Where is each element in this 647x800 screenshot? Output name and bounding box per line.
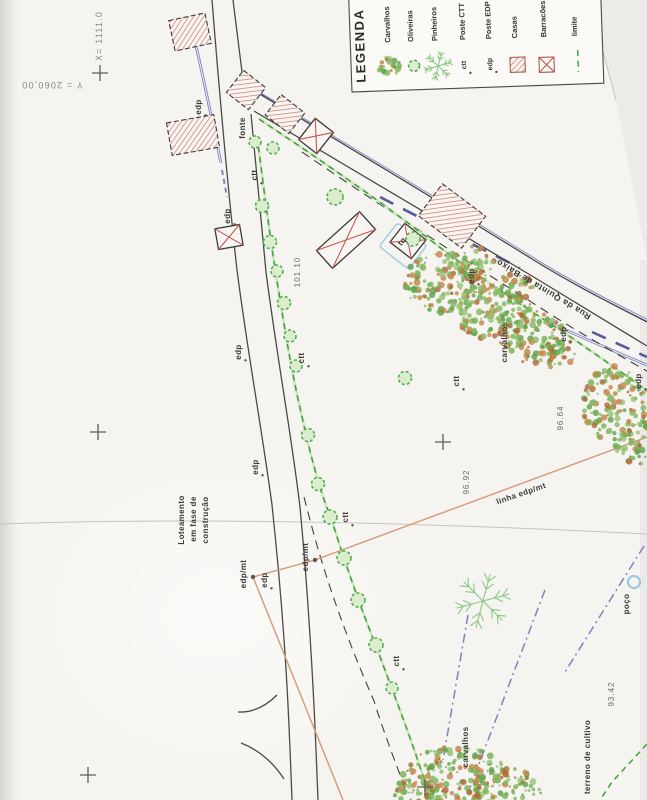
oak-foliage-dot: [551, 331, 554, 334]
oak-foliage-dot: [416, 791, 421, 796]
oak-foliage-dot: [531, 317, 536, 322]
oak-foliage-dot: [481, 333, 487, 339]
pole-dot: [233, 223, 235, 225]
pine-twig: [492, 610, 501, 611]
oak-foliage-dot: [495, 316, 499, 320]
map-label: edp/mt: [301, 543, 310, 572]
oak-foliage-dot: [478, 768, 483, 773]
oak-foliage-dot: [472, 752, 478, 758]
oak-foliage-dot: [501, 317, 506, 322]
oak-foliage-dot: [525, 358, 528, 361]
oak-foliage-dot: [435, 756, 438, 759]
pole-dot: [644, 388, 646, 390]
oak-foliage-dot: [397, 781, 403, 787]
oak-foliage-dot: [523, 305, 526, 308]
oak-foliage-dot: [523, 316, 527, 320]
oak-foliage-dot: [470, 287, 475, 292]
oak-foliage-dot: [608, 417, 614, 423]
legend-item-label: Poste EDP: [483, 1, 493, 39]
map-label: 93.42: [607, 681, 616, 706]
oak-foliage-dot: [639, 463, 641, 465]
oak-foliage-dot: [493, 774, 499, 780]
olive-tree: [399, 372, 412, 385]
oak-foliage-dot: [426, 782, 428, 784]
pole-dot: [244, 359, 246, 361]
pine-twig: [443, 70, 447, 71]
oak-foliage-dot: [634, 424, 636, 426]
olive-tree: [406, 232, 420, 246]
oak-foliage-dot: [447, 750, 453, 756]
oak-foliage-dot: [450, 292, 454, 296]
oak-foliage-dot: [409, 282, 412, 285]
oak-foliage-dot: [592, 423, 598, 429]
oak-foliage-dot: [533, 359, 540, 366]
map-label: ctt: [392, 656, 401, 667]
olive-tree: [327, 189, 343, 205]
oak-foliage-dot: [515, 346, 518, 349]
oak-foliage-dot: [604, 402, 610, 408]
pole-dot: [307, 365, 309, 367]
oak-foliage-dot: [437, 764, 442, 769]
legend-title: LEGENDA: [351, 8, 369, 83]
pine-twig: [468, 578, 469, 587]
oak-foliage-dot: [413, 295, 417, 299]
oak-foliage-dot: [502, 276, 509, 283]
olive-tree: [271, 265, 283, 277]
oak-foliage-dot: [629, 394, 631, 396]
power-pole-dot: [251, 575, 255, 579]
oak-foliage-dot: [619, 409, 622, 412]
oak-foliage-dot: [596, 383, 599, 386]
oak-foliage-dot: [443, 748, 448, 753]
oak-foliage-dot: [435, 795, 440, 800]
oak-foliage-dot: [431, 791, 435, 795]
oak-foliage-dot: [485, 781, 489, 785]
oak-foliage-dot: [608, 368, 610, 370]
map-label: Loteamento: [177, 495, 186, 544]
oak-foliage-dot: [498, 784, 500, 786]
oak-foliage-dot: [563, 355, 567, 359]
oak-foliage-dot: [420, 753, 422, 755]
oak-foliage-dot: [448, 261, 455, 268]
map-label: edp: [260, 572, 269, 587]
oak-foliage-dot: [532, 788, 536, 792]
oak-foliage-dot: [599, 413, 602, 416]
oak-foliage-dot: [511, 308, 515, 312]
oak-foliage-dot: [627, 428, 632, 433]
oak-foliage-dot: [425, 257, 427, 259]
scan-left-shadow: [0, 0, 18, 800]
oak-foliage-dot: [621, 451, 625, 455]
oak-foliage-dot: [490, 260, 494, 264]
oak-foliage-dot: [512, 791, 516, 795]
oak-foliage-dot: [430, 303, 434, 307]
oak-foliage-dot: [582, 408, 587, 413]
oak-foliage-dot: [489, 307, 494, 312]
oak-foliage-dot: [589, 386, 596, 393]
map-label: edp: [634, 373, 643, 388]
oak-foliage-dot: [636, 430, 640, 434]
legend-item-label: limite: [570, 16, 580, 36]
oak-foliage-dot: [587, 422, 590, 425]
map-label: 96.64: [556, 405, 565, 430]
oak-foliage-dot: [468, 264, 471, 267]
scan-light-patch: [0, 430, 430, 800]
oak-foliage-dot: [479, 320, 484, 325]
oak-foliage-dot: [440, 271, 446, 277]
oak-foliage-dot: [437, 273, 440, 276]
oak-foliage-dot: [628, 440, 634, 446]
oak-foliage-dot: [411, 782, 417, 788]
oak-foliage-dot: [536, 310, 538, 312]
map-label: em fase de: [189, 496, 198, 542]
oak-foliage-dot: [466, 789, 472, 795]
oak-foliage-dot: [443, 781, 449, 787]
olive-tree: [386, 682, 398, 694]
oak-foliage-dot: [446, 291, 450, 295]
house-symbol: [510, 57, 526, 73]
oak-foliage-dot: [479, 758, 481, 760]
oak-foliage-dot: [448, 273, 454, 279]
oak-foliage-dot: [515, 299, 521, 305]
oak-foliage-dot: [427, 282, 432, 287]
map-label: edp: [251, 459, 260, 474]
oak-foliage-dot: [530, 778, 537, 785]
oak-foliage-dot: [464, 252, 466, 254]
oak-foliage-dot: [516, 334, 521, 339]
oak-foliage-dot: [411, 791, 413, 793]
pole-dot: [270, 587, 272, 589]
oak-foliage-dot: [615, 416, 621, 422]
oak-foliage-dot: [526, 354, 530, 358]
oak-foliage-dot: [488, 312, 494, 318]
oak-foliage-dot: [532, 314, 536, 318]
oak-foliage-dot: [484, 260, 489, 265]
oak-foliage-dot: [624, 432, 626, 434]
oak-foliage-dot: [593, 371, 599, 377]
legend: LEGENDA CarvalhosOliveirasPinheirosPoste…: [348, 0, 603, 92]
oak-foliage-dot: [496, 289, 502, 295]
oak-foliage-dot: [432, 769, 435, 772]
oak-foliage-dot: [467, 313, 472, 318]
oak-foliage-dot: [472, 294, 476, 298]
oak-foliage-dot: [614, 445, 617, 448]
oak-foliage-dot: [514, 776, 517, 779]
oak-foliage-dot: [417, 295, 422, 300]
oak-foliage-dot: [478, 264, 484, 270]
oak-foliage-dot: [496, 765, 499, 768]
oak-foliage-dot: [600, 379, 606, 385]
map-label: poço: [622, 594, 631, 615]
oak-foliage-dot: [515, 328, 521, 334]
oak-foliage-dot: [583, 397, 588, 402]
oak-foliage-dot: [499, 793, 503, 797]
pine-twig: [430, 54, 431, 58]
oak-foliage-dot: [408, 762, 413, 767]
pine-twig: [446, 73, 447, 77]
oak-foliage-dot: [641, 435, 645, 439]
oak-foliage-dot: [641, 415, 645, 419]
oak-foliage-dot: [512, 302, 515, 305]
oak-foliage-dot: [613, 437, 617, 441]
oak-foliage-dot: [554, 320, 558, 324]
oak-foliage-dot: [509, 294, 511, 296]
oak-foliage-dot: [613, 391, 618, 396]
map-label: ctt: [297, 353, 306, 364]
oak-foliage-dot: [547, 361, 552, 366]
oak-foliage-dot: [623, 408, 627, 412]
oak-foliage-dot: [450, 253, 457, 260]
pine-twig: [460, 586, 469, 587]
oak-foliage-dot: [485, 254, 489, 258]
oak-foliage-dot: [455, 291, 459, 295]
oak-foliage-dot: [521, 360, 524, 363]
oak-foliage-dot: [550, 318, 555, 323]
oak-foliage-dot: [471, 780, 473, 782]
oak-foliage-dot: [494, 302, 498, 306]
map-label: construção: [201, 496, 210, 543]
oak-foliage-dot: [400, 771, 407, 778]
pine-twig: [433, 57, 434, 61]
oak-foliage-dot: [450, 791, 454, 795]
oak-foliage-dot: [461, 292, 465, 296]
oak-foliage-dot: [457, 283, 463, 289]
oak-foliage-dot: [393, 793, 397, 797]
olive-tree: [284, 330, 296, 342]
oak-foliage-dot: [541, 336, 547, 342]
oak-foliage-dot: [455, 261, 459, 265]
pine-twig: [474, 584, 475, 593]
legend-item-label: Pinheiros: [429, 7, 439, 41]
oak-foliage-dot: [410, 768, 416, 774]
site-plan-map: X= 1111.0Y = 2060,00edpfontecttedptq101.…: [0, 0, 647, 800]
oak-foliage-dot: [582, 414, 587, 419]
oak-foliage-dot: [587, 404, 592, 409]
olive-tree: [264, 236, 277, 249]
oak-foliage-dot: [586, 390, 590, 394]
oak-foliage-dot: [635, 448, 640, 453]
oak-foliage-dot: [625, 374, 628, 377]
oak-foliage-dot: [430, 750, 433, 753]
oak-foliage-dot: [531, 354, 537, 360]
oak-foliage-dot: [418, 287, 422, 291]
map-label: 96.92: [462, 469, 471, 494]
oak-foliage-dot: [407, 264, 413, 270]
oak-foliage-dot: [452, 761, 456, 765]
oak-foliage-dot: [398, 785, 404, 791]
oak-foliage-dot: [462, 255, 467, 260]
oak-foliage-dot: [481, 280, 485, 284]
oak-foliage-dot: [477, 748, 481, 752]
oak-foliage-dot: [479, 773, 486, 780]
oak-foliage-dot: [492, 785, 495, 788]
oak-foliage-dot: [554, 363, 556, 365]
oak-foliage-dot: [511, 315, 514, 318]
edp-pole-symbol: edp: [487, 58, 494, 71]
pine-twig: [497, 615, 498, 624]
oak-foliage-dot: [457, 782, 460, 785]
oak-foliage-dot: [553, 350, 557, 354]
oak-foliage-dot: [447, 762, 451, 766]
oak-foliage-dot: [611, 374, 617, 380]
oak-foliage-dot: [416, 763, 419, 766]
pole-dot: [261, 474, 263, 476]
oak-foliage-dot: [504, 792, 508, 796]
oak-foliage-dot: [500, 284, 505, 289]
oak-foliage-dot: [435, 761, 439, 765]
oak-foliage-dot: [522, 794, 525, 797]
oak-foliage-dot: [502, 768, 506, 772]
legend-item-label: Oliveiras: [405, 10, 415, 42]
oak-foliage-dot: [615, 412, 619, 416]
oak-foliage-dot: [517, 784, 520, 787]
oak-foliage-dot: [615, 449, 619, 453]
oak-foliage-dot: [475, 792, 481, 798]
oak-foliage-dot: [442, 790, 445, 793]
oak-foliage-dot: [524, 776, 529, 781]
oak-foliage-dot: [641, 405, 647, 411]
oak-foliage-dot: [451, 301, 457, 307]
oak-foliage-dot: [480, 318, 482, 320]
oak-foliage-dot: [423, 279, 427, 283]
oak-foliage-dot: [458, 298, 461, 301]
oak-foliage-dot: [540, 350, 546, 356]
oak-foliage-dot: [427, 307, 432, 312]
map-label: carvalhos: [461, 726, 470, 767]
pole-dot: [260, 182, 262, 184]
oak-foliage-dot: [423, 294, 427, 298]
oak-foliage-dot: [436, 251, 443, 258]
oak-foliage-dot: [626, 458, 633, 465]
pole-dot: [477, 283, 479, 285]
map-label: fonte: [238, 117, 247, 139]
oak-foliage-dot: [478, 285, 484, 291]
oak-foliage-dot: [486, 788, 488, 790]
oak-foliage-dot: [424, 763, 428, 767]
oak-foliage-dot: [457, 268, 460, 271]
oak-foliage-dot: [626, 419, 631, 424]
oak-foliage-dot: [596, 393, 598, 395]
legend-item-label: Poste CTT: [457, 2, 467, 40]
oak-foliage-dot: [417, 257, 423, 263]
olive-tree: [278, 297, 291, 310]
olive-tree: [302, 429, 315, 442]
oak-foliage-dot: [608, 385, 613, 390]
oak-foliage-dot: [490, 793, 492, 795]
oak-foliage-dot: [517, 307, 522, 312]
pole-dot: [204, 114, 206, 116]
oak-foliage-dot: [478, 245, 484, 251]
pole-dot: [351, 524, 353, 526]
oak-foliage-dot: [475, 291, 477, 293]
shed-building: [215, 224, 243, 249]
oak-foliage-dot: [628, 371, 631, 374]
oak-foliage-dot: [473, 778, 479, 784]
oak-foliage-dot: [460, 779, 466, 785]
oak-foliage-dot: [429, 781, 432, 784]
oak-foliage-dot: [527, 346, 530, 349]
oak-foliage-dot: [500, 776, 503, 779]
oak-foliage-dot: [604, 390, 607, 393]
oak-foliage-dot: [435, 778, 437, 780]
oak-foliage-dot: [558, 361, 562, 365]
pole-dot: [462, 388, 464, 390]
oak-foliage-dot: [642, 391, 646, 395]
oak-foliage-dot: [585, 384, 590, 389]
oak-foliage-dot: [618, 385, 621, 388]
oak-foliage-dot: [642, 420, 646, 424]
oak-foliage-dot: [549, 347, 551, 349]
ctt-pole-symbol: ctt: [461, 60, 468, 69]
oak-foliage-dot: [476, 308, 483, 315]
oak-foliage-dot: [502, 301, 507, 306]
oak-foliage-dot: [622, 445, 629, 452]
oak-foliage-dot: [496, 305, 502, 311]
oak-foliage-dot: [445, 766, 447, 768]
olive-tree: [369, 638, 383, 652]
oak-foliage-dot: [415, 270, 421, 276]
oak-foliage-dot: [459, 323, 463, 327]
oak-foliage-dot: [523, 294, 530, 301]
oak-foliage-dot: [638, 443, 642, 447]
oak-foliage-dot: [446, 310, 449, 313]
oak-foliage-dot: [489, 769, 495, 775]
oak-foliage-dot: [472, 328, 477, 333]
oak-foliage-dot: [439, 770, 443, 774]
oak-foliage-dot: [606, 428, 612, 434]
oak-foliage-dot: [402, 781, 406, 785]
oak-foliage-dot: [416, 264, 419, 267]
oak-foliage-dot: [611, 363, 618, 370]
oak-foliage-dot: [612, 431, 616, 435]
map-label: edp/mt: [239, 560, 248, 589]
oak-foliage-dot: [474, 299, 480, 305]
map-label: X= 1111.0: [94, 11, 104, 61]
oak-foliage-dot: [460, 313, 463, 316]
oak-foliage-dot: [628, 433, 631, 436]
oak-foliage-dot: [590, 399, 596, 405]
oak-foliage-dot: [590, 412, 593, 415]
oak-foliage-dot: [482, 311, 485, 314]
pine-twig: [497, 615, 506, 616]
oak-foliage-dot: [395, 789, 399, 793]
oak-foliage-dot: [511, 293, 516, 298]
oak-foliage-dot: [478, 786, 482, 790]
oak-foliage-dot: [515, 769, 517, 771]
oak-foliage-dot: [456, 281, 458, 283]
pine-twig: [466, 592, 475, 593]
oak-foliage-dot: [543, 320, 547, 324]
oak-foliage-dot: [442, 779, 444, 781]
pole-dot: [402, 668, 404, 670]
oak-foliage-dot: [487, 333, 491, 337]
oak-foliage-dot: [456, 771, 458, 773]
oak-foliage-dot: [527, 789, 530, 792]
oak-foliage-dot: [484, 315, 487, 318]
oak-foliage-dot: [602, 368, 608, 374]
olive-tree: [351, 593, 365, 607]
oak-foliage-dot: [522, 770, 527, 775]
oak-foliage-dot: [441, 292, 446, 297]
olive-tree: [337, 551, 351, 565]
oak-foliage-dot: [521, 781, 524, 784]
map-label: edp: [223, 208, 232, 223]
pine-twig: [426, 58, 430, 59]
pine-twig: [446, 73, 450, 74]
oak-foliage-dot: [629, 408, 633, 412]
oak-foliage-dot: [437, 284, 441, 288]
olive-tree: [267, 142, 279, 154]
